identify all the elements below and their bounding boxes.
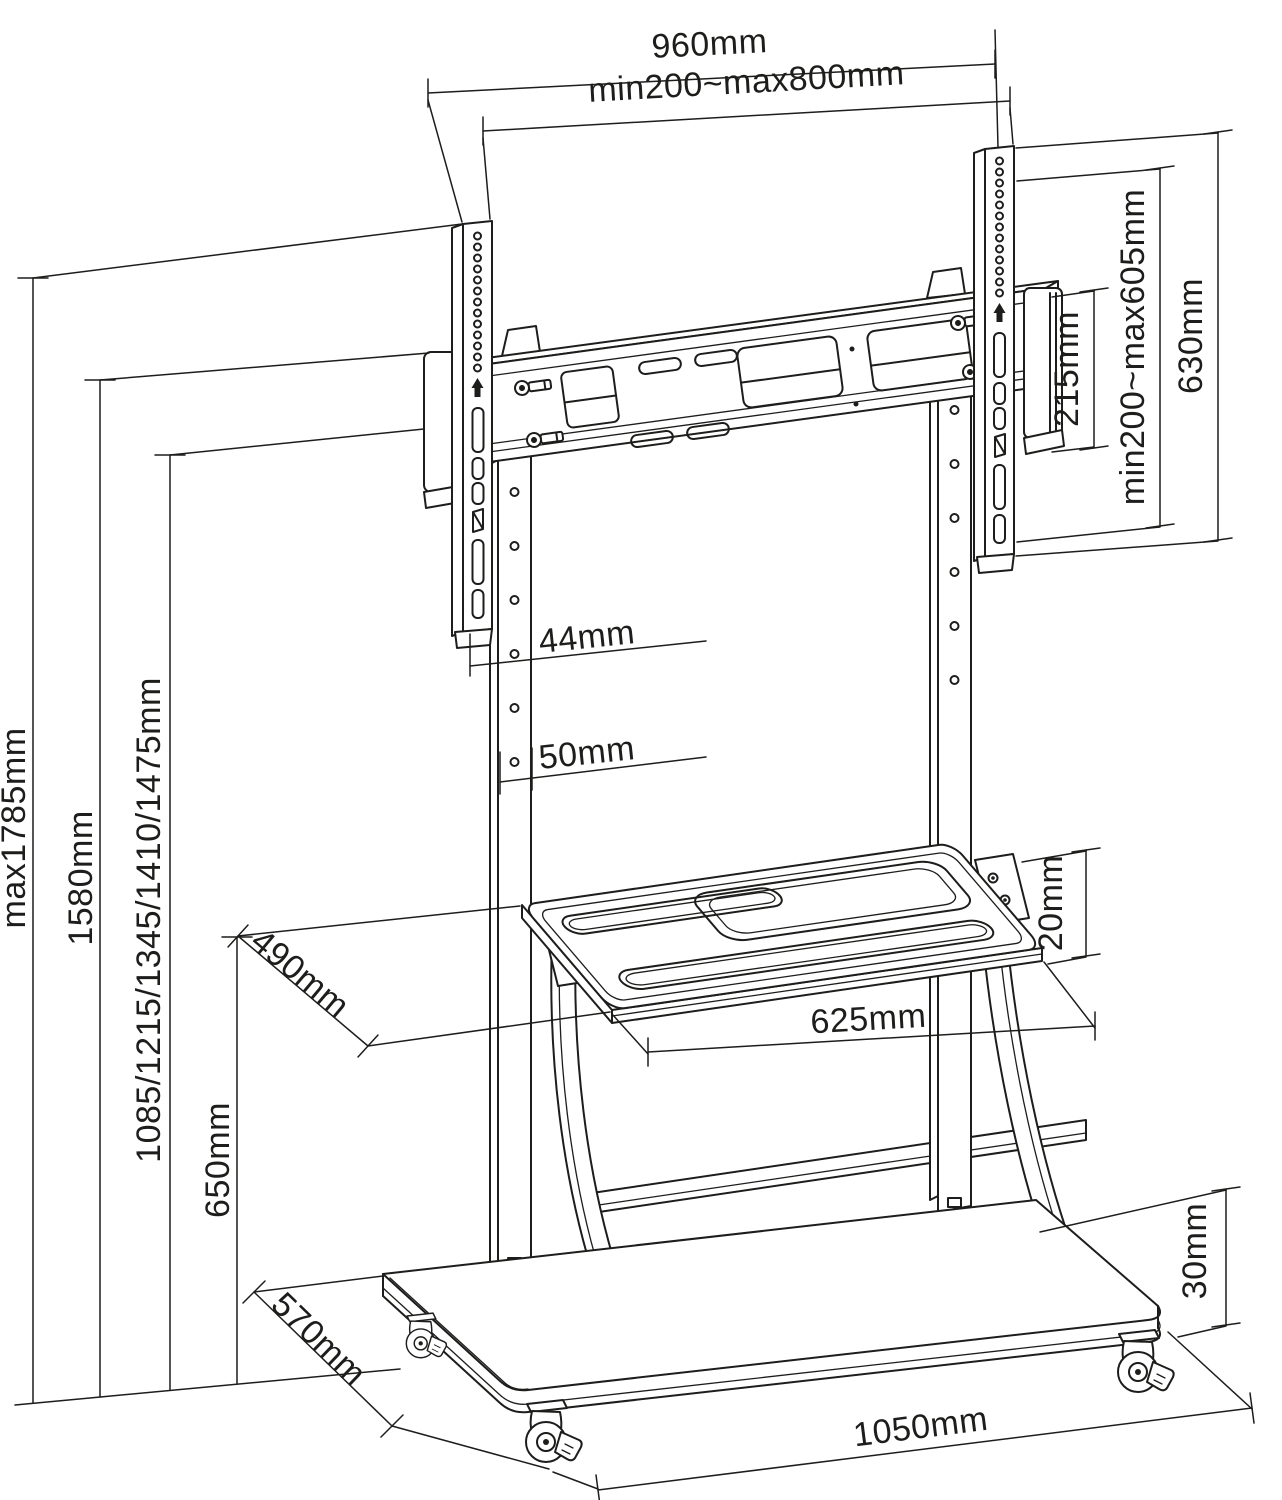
left-column bbox=[490, 456, 531, 1280]
dim-shelf-thickness: 20mm bbox=[1032, 855, 1070, 951]
dim-overall-width: 960mm bbox=[651, 22, 769, 66]
dim-display-center-heights: 1085/1215/1345/1410/1475mm bbox=[130, 677, 168, 1163]
dim-column-depth: 50mm bbox=[537, 729, 637, 777]
dim-max-height: max1785mm bbox=[0, 727, 33, 928]
technical-drawing-page: 960mm min200~max800mm 215mm min200~max60… bbox=[0, 0, 1282, 1500]
dim-vesa-width-range: min200~max800mm bbox=[587, 54, 905, 110]
dim-base-width: 1050mm bbox=[851, 1400, 990, 1455]
dim-frame-height: 1580mm bbox=[62, 810, 100, 945]
vesa-strip-right bbox=[974, 146, 1014, 573]
dim-bracket-height: 630mm bbox=[1172, 278, 1210, 394]
dim-end-bracket-height: 215mm bbox=[1048, 311, 1086, 427]
vesa-strip-left bbox=[452, 221, 492, 648]
tv-stand-dimension-diagram: 960mm min200~max800mm 215mm min200~max60… bbox=[0, 0, 1282, 1500]
dim-shelf-height: 650mm bbox=[199, 1102, 237, 1218]
rear-bottom-crossbar bbox=[592, 1120, 1086, 1213]
caster-front-right bbox=[1118, 1330, 1174, 1392]
dim-column-width: 44mm bbox=[537, 613, 637, 661]
dim-base-thickness: 30mm bbox=[1176, 1203, 1214, 1299]
dim-vesa-height-range: min200~max605mm bbox=[1114, 189, 1152, 505]
caster-front-left bbox=[526, 1400, 582, 1462]
dim-shelf-width: 625mm bbox=[809, 997, 927, 1042]
right-column bbox=[930, 376, 971, 1212]
dim-shelf-depth: 490mm bbox=[243, 922, 356, 1026]
